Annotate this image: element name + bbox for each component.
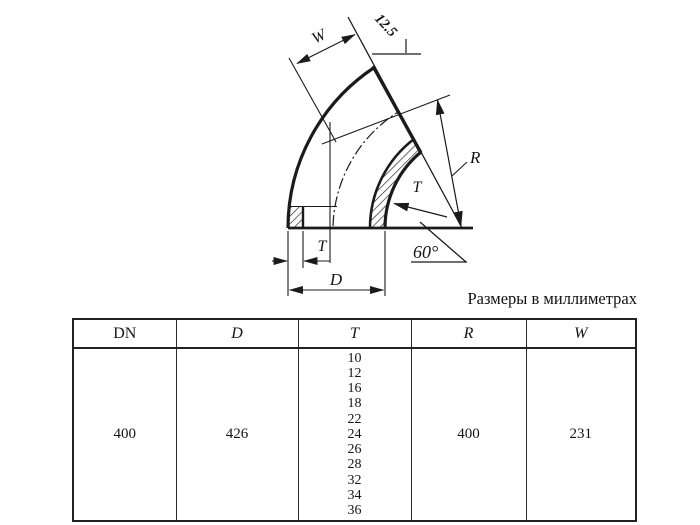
t-value: 22: [299, 412, 411, 427]
wall-section-bottom: [289, 207, 304, 228]
t-value: 36: [299, 503, 411, 518]
outer-arc: [288, 67, 375, 228]
col-header-d: D: [176, 319, 298, 348]
t-value: 34: [299, 488, 411, 503]
t-value: 10: [299, 351, 411, 366]
t-top-label: T: [413, 179, 423, 196]
units-caption: Размеры в миллиметрах: [337, 289, 637, 309]
cell-w: 231: [526, 348, 636, 521]
w-extension-line: [289, 58, 336, 142]
w-dim-shaft-right: [326, 35, 355, 50]
elbow-drawing: W 12.5 R T 60° T D: [0, 0, 700, 312]
table-row: 400 426 1012161822242628323436 400 231: [73, 348, 636, 521]
r-dim-label: R: [469, 148, 481, 167]
angle-label: 60°: [413, 242, 438, 262]
col-header-t: T: [298, 319, 411, 348]
d-dim-label: D: [329, 270, 343, 289]
col-header-r: R: [411, 319, 526, 348]
t-value: 12: [299, 366, 411, 381]
t-value: 26: [299, 442, 411, 457]
t-value: 28: [299, 457, 411, 472]
t-value: 32: [299, 473, 411, 488]
r-dim-line: [438, 100, 462, 226]
header-row: DN D T R W: [73, 319, 636, 348]
t-values-stack: 1012161822242628323436: [299, 351, 411, 518]
t-bottom-label: T: [318, 238, 328, 255]
tangent-line: [322, 95, 450, 144]
dimensions-table: DN D T R W 400 426 101216182224262832343…: [72, 318, 637, 522]
t-top-shaft: [394, 204, 447, 218]
t-value: 16: [299, 381, 411, 396]
w-dim-shaft-left: [297, 49, 326, 64]
cell-d: 426: [176, 348, 298, 521]
r-leader: [452, 162, 467, 176]
t-value: 24: [299, 427, 411, 442]
cell-t: 1012161822242628323436: [298, 348, 411, 521]
w-dim-label: W: [309, 26, 330, 48]
col-header-w: W: [526, 319, 636, 348]
cell-r: 400: [411, 348, 526, 521]
cell-dn: 400: [73, 348, 176, 521]
t-value: 18: [299, 396, 411, 411]
chamfer-label: 12.5: [371, 11, 400, 40]
col-header-dn: DN: [73, 319, 176, 348]
slanted-face-edge: [373, 66, 421, 153]
page: W 12.5 R T 60° T D Размеры в миллиметрах: [0, 0, 700, 525]
